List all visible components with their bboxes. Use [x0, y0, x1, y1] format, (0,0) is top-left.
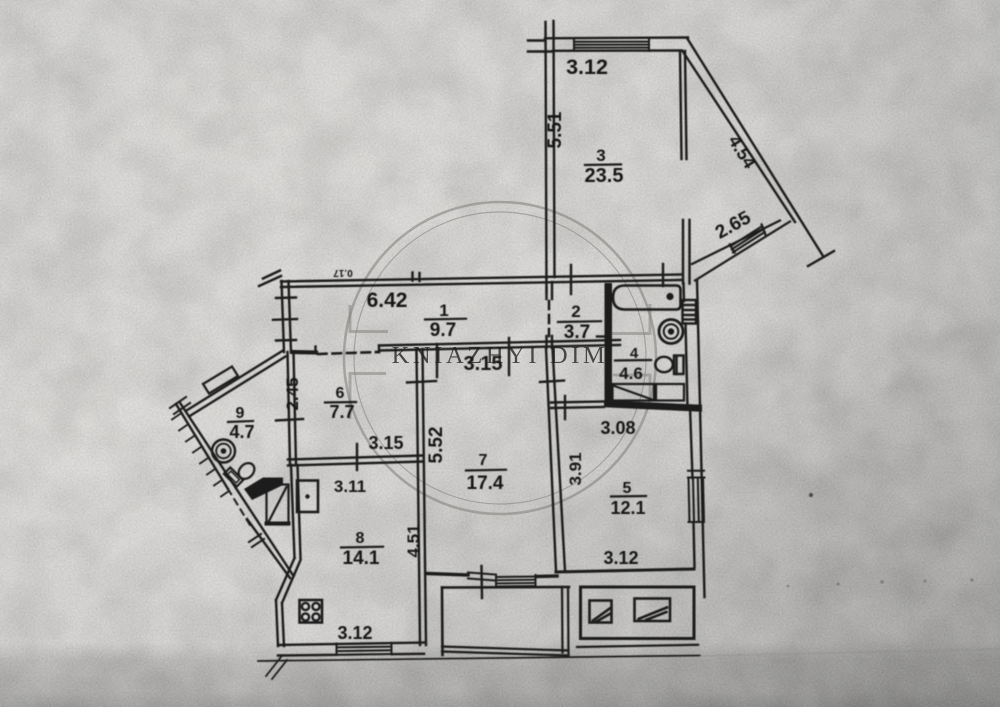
svg-text:5.51: 5.51	[545, 111, 566, 148]
svg-text:23.5: 23.5	[585, 165, 624, 187]
svg-text:6: 6	[336, 385, 345, 402]
svg-text:3.08: 3.08	[600, 418, 635, 438]
svg-text:4.7: 4.7	[229, 422, 254, 442]
svg-text:3.11: 3.11	[334, 477, 366, 496]
svg-text:3.12: 3.12	[337, 623, 372, 643]
svg-text:3: 3	[596, 146, 605, 165]
svg-text:1: 1	[439, 301, 448, 320]
svg-text:4.51: 4.51	[404, 524, 423, 557]
svg-text:2: 2	[571, 302, 580, 321]
svg-text:3.91: 3.91	[566, 452, 585, 485]
svg-text:9: 9	[236, 405, 245, 422]
svg-text:3.15: 3.15	[464, 353, 503, 375]
svg-text:2.45: 2.45	[283, 377, 302, 410]
svg-text:8: 8	[356, 530, 365, 547]
svg-text:4.6: 4.6	[619, 364, 643, 383]
svg-text:6.42: 6.42	[367, 289, 408, 312]
svg-text:5.52: 5.52	[426, 427, 447, 464]
svg-text:14.1: 14.1	[343, 548, 380, 569]
svg-text:5: 5	[623, 480, 632, 497]
svg-text:7: 7	[479, 452, 488, 469]
svg-text:17.4: 17.4	[467, 473, 504, 494]
svg-text:0.17: 0.17	[333, 267, 353, 278]
svg-text:12.1: 12.1	[610, 498, 645, 518]
svg-text:3.15: 3.15	[368, 433, 403, 453]
svg-text:9.7: 9.7	[430, 320, 456, 341]
svg-text:3.12: 3.12	[603, 548, 638, 568]
svg-text:7.7: 7.7	[329, 402, 354, 422]
svg-text:3.12: 3.12	[566, 55, 608, 79]
svg-text:3.7: 3.7	[564, 322, 590, 343]
